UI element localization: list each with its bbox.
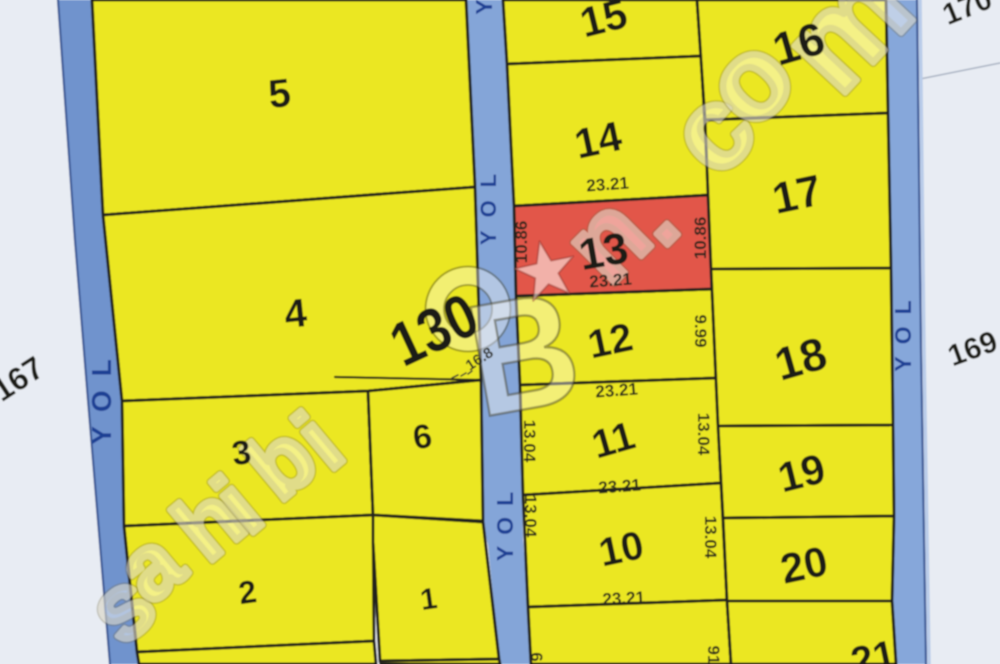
svg-text:YOL: YOL [476,161,501,245]
svg-text:9.99: 9.99 [691,314,710,347]
svg-text:17: 17 [768,166,826,224]
svg-text:20: 20 [776,537,831,593]
svg-text:YOL: YOL [492,481,518,561]
svg-text:13.04: 13.04 [520,420,539,463]
svg-text:YOL: YOL [890,288,916,371]
svg-text:YOL: YOL [86,345,117,445]
svg-text:13.04: 13.04 [694,413,713,456]
svg-text:23.21: 23.21 [602,588,645,609]
svg-text:13.04: 13.04 [521,495,540,538]
svg-text:10.86: 10.86 [691,217,710,260]
svg-text:6: 6 [527,652,546,661]
svg-text:23.21: 23.21 [589,270,633,292]
svg-text:10: 10 [595,523,648,575]
svg-text:91: 91 [704,646,723,664]
svg-text:13.04: 13.04 [701,516,720,559]
svg-text:12: 12 [584,315,637,367]
svg-text:23.21: 23.21 [586,174,630,196]
svg-text:10.86: 10.86 [512,221,531,264]
svg-text:23.21: 23.21 [595,380,639,402]
svg-text:5: 5 [266,71,293,117]
svg-text:Y: Y [471,0,497,15]
svg-text:23.21: 23.21 [598,476,642,498]
